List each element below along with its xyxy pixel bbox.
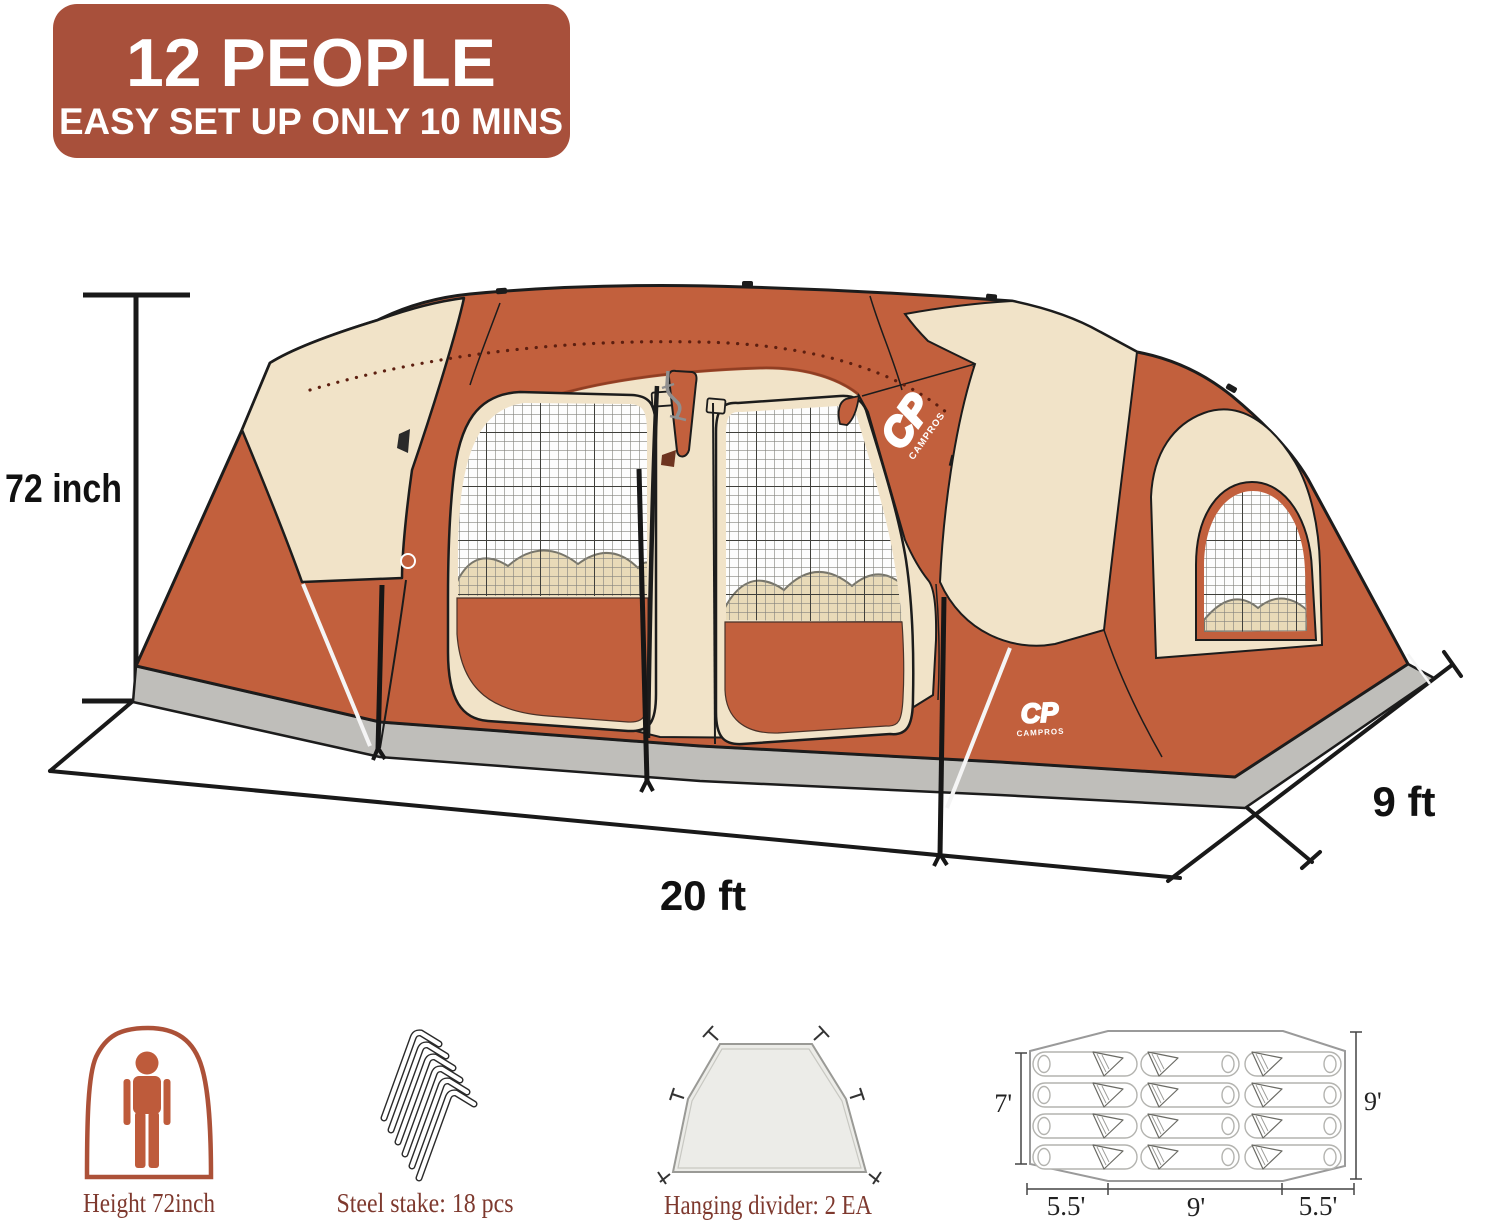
svg-text:CP: CP [1020,697,1060,729]
svg-text:7': 7' [994,1089,1012,1118]
svg-text:9 ft: 9 ft [1373,778,1436,825]
svg-text:Hanging divider: 2 EA: Hanging divider: 2 EA [664,1190,872,1220]
svg-text:Height 72inch: Height 72inch [83,1188,215,1218]
svg-text:9': 9' [1187,1192,1205,1222]
svg-text:5.5': 5.5' [1047,1191,1086,1221]
svg-text:72 inch: 72 inch [5,467,122,511]
svg-text:Steel stake: 18 pcs: Steel stake: 18 pcs [337,1188,514,1218]
svg-text:9': 9' [1364,1087,1382,1116]
svg-text:20 ft: 20 ft [660,872,746,919]
svg-text:EASY SET UP ONLY 10 MINS: EASY SET UP ONLY 10 MINS [59,101,563,142]
svg-text:12 PEOPLE: 12 PEOPLE [126,25,496,101]
svg-text:5.5': 5.5' [1299,1191,1338,1221]
